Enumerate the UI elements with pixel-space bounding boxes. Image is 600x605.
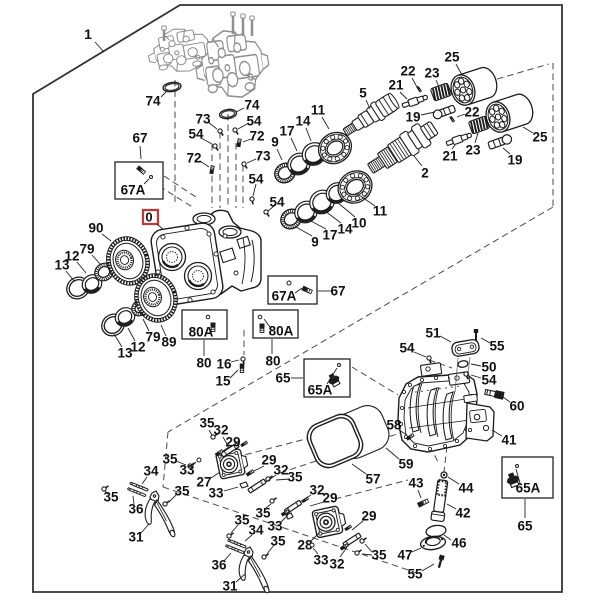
svg-text:35: 35 (162, 452, 178, 467)
svg-text:74: 74 (145, 94, 161, 109)
svg-text:22: 22 (400, 64, 415, 79)
svg-text:74: 74 (244, 98, 260, 113)
svg-text:65A: 65A (308, 383, 333, 398)
svg-text:67: 67 (132, 131, 147, 146)
svg-text:31: 31 (222, 579, 238, 594)
svg-text:29: 29 (322, 491, 337, 506)
svg-text:54: 54 (246, 114, 262, 129)
svg-text:47: 47 (397, 548, 412, 563)
svg-text:29: 29 (361, 509, 376, 524)
svg-text:35: 35 (287, 470, 303, 485)
svg-text:54: 54 (481, 373, 497, 388)
svg-text:0: 0 (145, 210, 152, 225)
svg-text:34: 34 (248, 523, 264, 538)
svg-text:22: 22 (464, 105, 479, 120)
svg-text:67: 67 (330, 284, 345, 299)
svg-text:42: 42 (455, 506, 470, 521)
svg-text:79: 79 (79, 242, 94, 257)
svg-text:19: 19 (507, 153, 522, 168)
svg-text:17: 17 (279, 124, 294, 139)
svg-text:60: 60 (509, 399, 524, 414)
svg-text:44: 44 (458, 481, 474, 496)
svg-text:89: 89 (161, 335, 176, 350)
svg-text:12: 12 (130, 340, 145, 355)
svg-text:29: 29 (225, 435, 240, 450)
svg-text:65: 65 (275, 371, 291, 386)
svg-text:72: 72 (186, 151, 201, 166)
svg-text:33: 33 (313, 553, 329, 568)
svg-text:23: 23 (465, 143, 481, 158)
svg-text:54: 54 (269, 195, 285, 210)
svg-text:19: 19 (405, 110, 420, 125)
svg-text:54: 54 (188, 127, 204, 142)
svg-text:80: 80 (196, 356, 211, 371)
svg-text:80: 80 (265, 354, 280, 369)
svg-text:25: 25 (444, 50, 460, 65)
svg-text:25: 25 (532, 130, 548, 145)
svg-text:33: 33 (208, 486, 224, 501)
svg-text:67A: 67A (272, 289, 297, 304)
svg-text:35: 35 (371, 548, 387, 563)
svg-text:73: 73 (195, 112, 211, 127)
svg-text:36: 36 (128, 502, 144, 517)
svg-text:65A: 65A (516, 481, 541, 496)
svg-text:90: 90 (88, 221, 103, 236)
svg-text:21: 21 (442, 149, 458, 164)
svg-text:73: 73 (255, 149, 271, 164)
svg-text:54: 54 (399, 341, 415, 356)
svg-text:9: 9 (311, 235, 319, 250)
svg-text:5: 5 (359, 86, 367, 101)
svg-text:67A: 67A (121, 183, 146, 198)
svg-text:51: 51 (425, 326, 441, 341)
svg-text:35: 35 (174, 484, 190, 499)
svg-text:9: 9 (271, 135, 279, 150)
svg-text:43: 43 (408, 476, 424, 491)
svg-text:10: 10 (351, 216, 366, 231)
svg-text:32: 32 (329, 557, 344, 572)
svg-text:80A: 80A (269, 324, 294, 339)
svg-text:79: 79 (145, 330, 160, 345)
svg-text:2: 2 (421, 166, 429, 181)
svg-text:14: 14 (295, 114, 311, 129)
svg-text:34: 34 (143, 464, 159, 479)
svg-text:55: 55 (489, 339, 505, 354)
svg-text:55: 55 (407, 567, 423, 582)
svg-text:13: 13 (54, 258, 70, 273)
svg-text:46: 46 (451, 536, 467, 551)
svg-text:21: 21 (388, 78, 404, 93)
svg-text:59: 59 (398, 457, 413, 472)
svg-text:23: 23 (424, 66, 440, 81)
svg-text:15: 15 (215, 374, 231, 389)
svg-text:17: 17 (322, 228, 337, 243)
svg-text:16: 16 (216, 357, 232, 372)
svg-text:57: 57 (365, 472, 380, 487)
svg-text:1: 1 (84, 26, 92, 42)
svg-text:54: 54 (248, 172, 264, 187)
svg-text:41: 41 (501, 433, 517, 448)
svg-text:65: 65 (517, 519, 533, 534)
svg-text:33: 33 (267, 519, 283, 534)
svg-text:72: 72 (249, 129, 264, 144)
svg-text:80A: 80A (189, 325, 214, 340)
svg-text:11: 11 (311, 103, 326, 118)
